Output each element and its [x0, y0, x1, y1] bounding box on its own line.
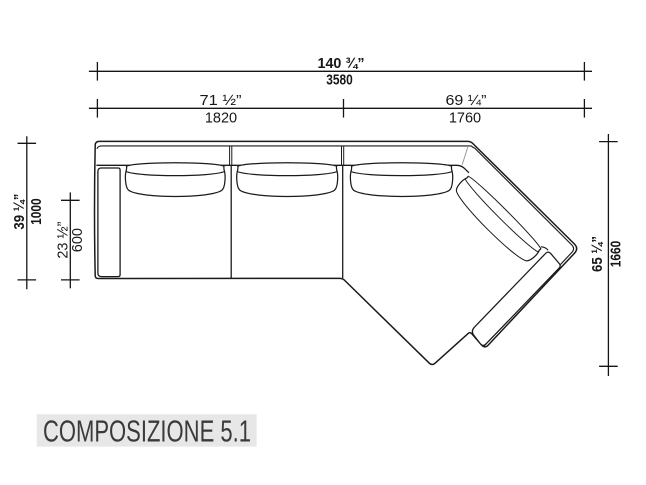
svg-text:65 ¼”: 65 ¼”	[589, 236, 606, 272]
svg-text:69 ¼”: 69 ¼”	[446, 93, 487, 109]
svg-text:1760: 1760	[449, 110, 481, 126]
svg-text:140 ¾”: 140 ¾”	[318, 55, 365, 72]
svg-text:71 ½”: 71 ½”	[200, 93, 242, 109]
svg-text:600: 600	[70, 228, 86, 252]
svg-text:3580: 3580	[326, 72, 353, 89]
svg-text:1820: 1820	[205, 110, 237, 126]
svg-text:COMPOSIZIONE 5.1: COMPOSIZIONE 5.1	[43, 413, 251, 448]
svg-text:1660: 1660	[608, 241, 625, 268]
svg-text:1000: 1000	[28, 198, 45, 225]
svg-text:39 ¼”: 39 ¼”	[11, 194, 28, 230]
